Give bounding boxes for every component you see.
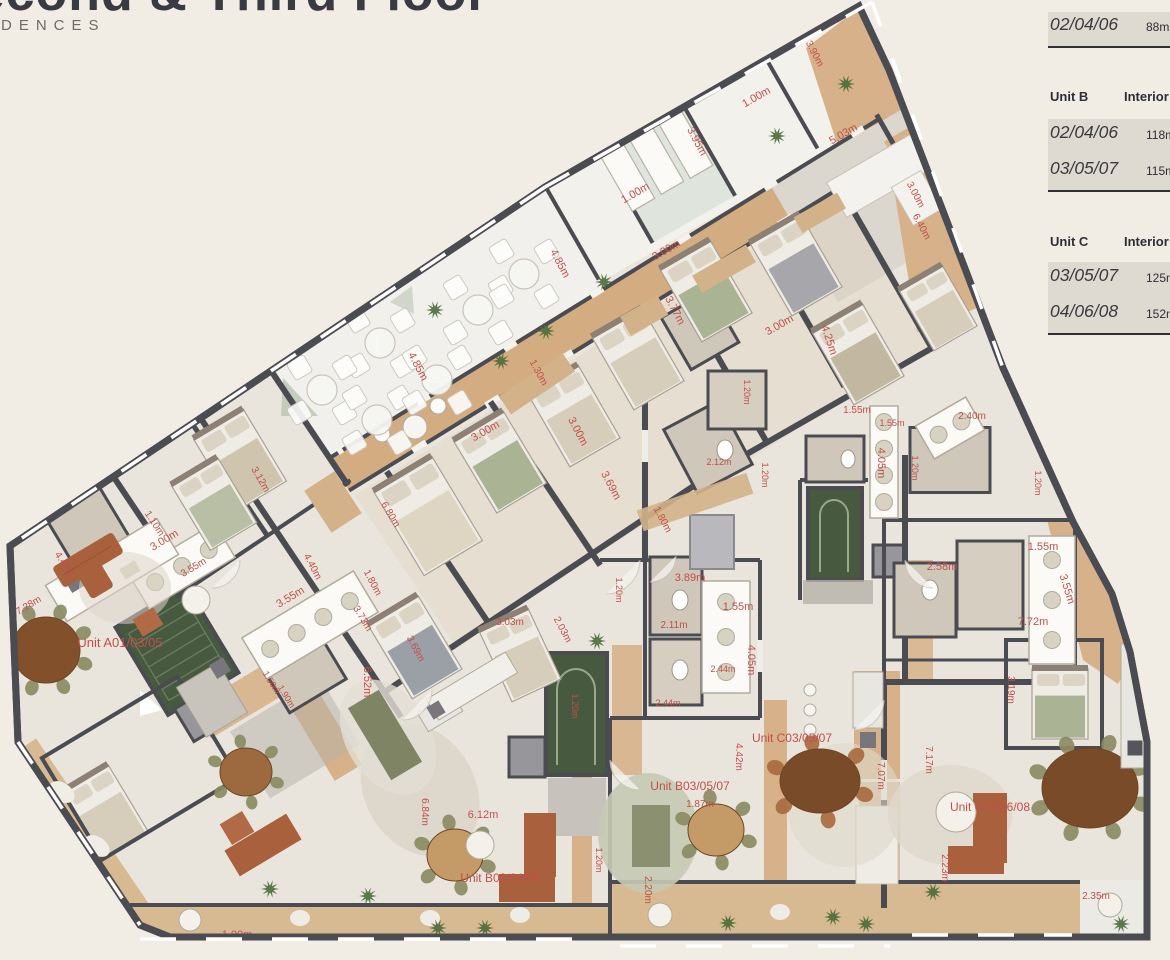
svg-text:7.17m: 7.17m: [923, 746, 934, 774]
svg-text:Unit C03/05/07: Unit C03/05/07: [752, 731, 832, 745]
svg-text:1.87m: 1.87m: [686, 799, 714, 810]
svg-text:2.40m: 2.40m: [958, 411, 986, 422]
svg-text:Unit B03/05/07: Unit B03/05/07: [650, 779, 730, 793]
svg-text:1.20m: 1.20m: [742, 379, 752, 404]
svg-text:2.23m: 2.23m: [939, 854, 950, 882]
svg-text:Unit C04/06/08: Unit C04/06/08: [950, 800, 1030, 814]
svg-text:2.12m: 2.12m: [706, 457, 731, 467]
svg-text:3.19m: 3.19m: [1005, 676, 1016, 704]
svg-text:6.52m: 6.52m: [361, 667, 373, 698]
svg-text:3.89m: 3.89m: [675, 572, 706, 584]
svg-text:2.20m: 2.20m: [642, 876, 653, 904]
svg-text:2.44m: 2.44m: [655, 698, 680, 708]
svg-text:1.20m: 1.20m: [910, 455, 920, 480]
svg-text:3.03m: 3.03m: [496, 617, 524, 628]
svg-text:4.42m: 4.42m: [733, 743, 744, 771]
svg-text:7.07m: 7.07m: [875, 762, 886, 790]
svg-text:1.20m: 1.20m: [570, 693, 580, 718]
svg-text:6.84m: 6.84m: [419, 798, 430, 826]
svg-text:4.05m: 4.05m: [745, 645, 757, 676]
svg-text:2.35m: 2.35m: [1082, 891, 1110, 902]
svg-text:4.05m: 4.05m: [875, 448, 887, 479]
svg-text:2.44m: 2.44m: [710, 664, 735, 674]
svg-text:Unit A01/03/05: Unit A01/03/05: [77, 635, 162, 650]
svg-text:1.20m: 1.20m: [1033, 470, 1043, 495]
svg-text:1.55m: 1.55m: [879, 418, 904, 428]
svg-text:1.20m: 1.20m: [594, 847, 604, 872]
svg-text:1.55m: 1.55m: [1028, 541, 1059, 553]
svg-text:1.20m: 1.20m: [614, 577, 624, 602]
svg-text:1.20m: 1.20m: [760, 462, 770, 487]
svg-text:1.55m: 1.55m: [723, 601, 754, 613]
svg-text:2.58m: 2.58m: [927, 561, 958, 573]
svg-text:6.12m: 6.12m: [468, 809, 499, 821]
svg-text:Unit B02/04/06: Unit B02/04/06: [460, 871, 540, 885]
svg-text:7.72m: 7.72m: [1018, 616, 1049, 628]
svg-text:1.55m: 1.55m: [843, 405, 871, 416]
svg-text:2.11m: 2.11m: [660, 620, 687, 631]
